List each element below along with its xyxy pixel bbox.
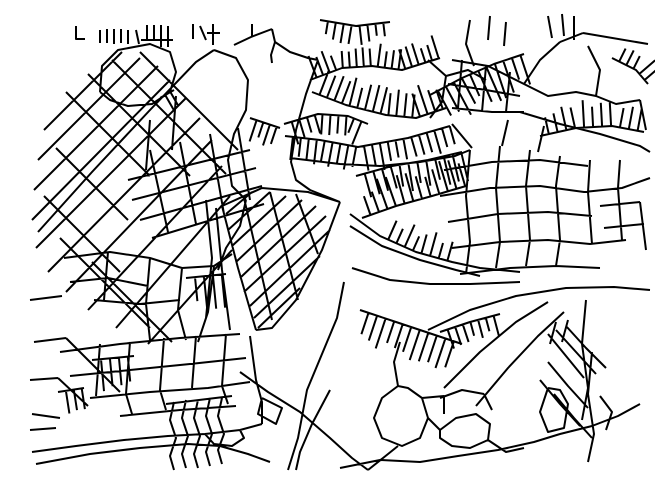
street-map-svg xyxy=(0,0,655,484)
street-map xyxy=(0,0,655,484)
